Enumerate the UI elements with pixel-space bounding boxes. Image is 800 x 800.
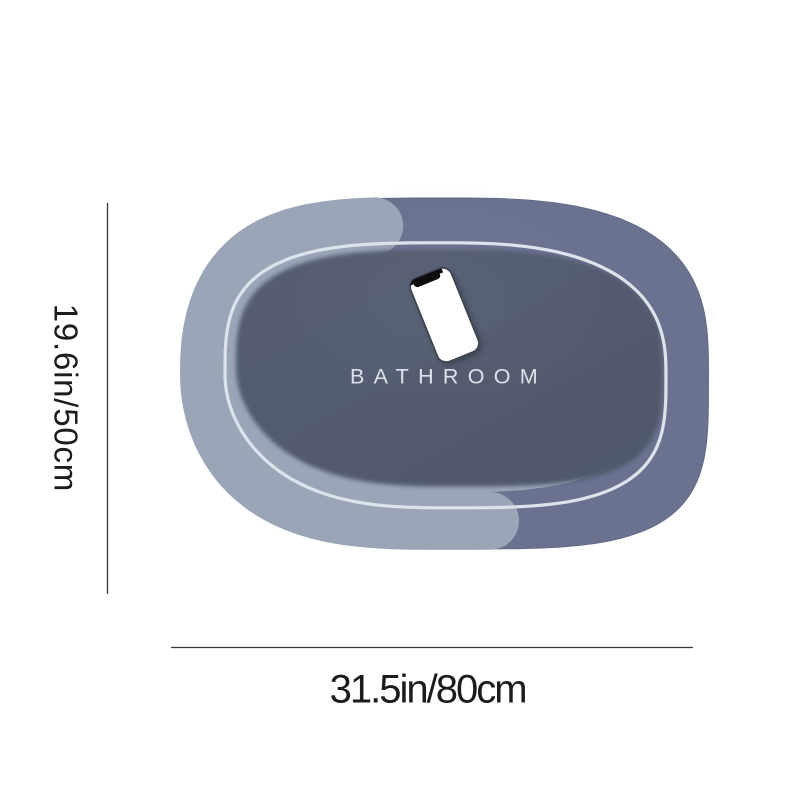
svg-text:19.6in/50cm: 19.6in/50cm (48, 304, 85, 492)
svg-text:31.5in/80cm: 31.5in/80cm (330, 667, 528, 711)
svg-text:BATHROOM: BATHROOM (350, 365, 547, 389)
